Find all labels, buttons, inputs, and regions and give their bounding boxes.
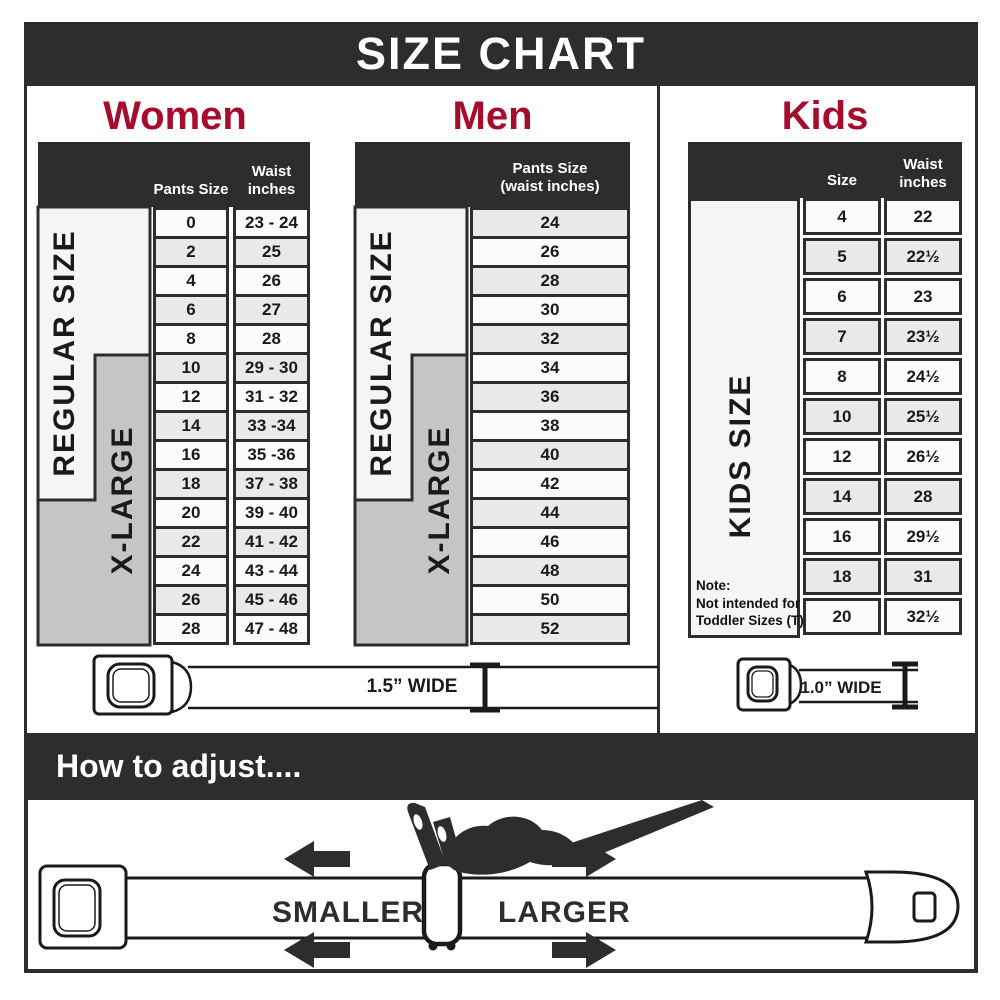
table-cell: 28	[884, 478, 962, 515]
table-cell: 34	[470, 352, 630, 384]
men-table-header: Pants Size (waist inches)	[355, 142, 630, 207]
section-divider	[657, 86, 660, 733]
men-pants-size-column: 242628303234363840424446485052	[470, 207, 630, 645]
page-title: SIZE CHART	[24, 22, 978, 86]
table-cell: 22	[884, 198, 962, 235]
table-cell: 31 - 32	[233, 381, 310, 413]
table-cell: 52	[470, 613, 630, 645]
kids-table-header: Size Waist inches	[688, 142, 962, 198]
kids-size-header: Size	[803, 172, 881, 191]
table-cell: 41 - 42	[233, 526, 310, 558]
table-cell: 35 -36	[233, 439, 310, 471]
table-cell: 14	[153, 410, 229, 442]
table-cell: 42	[470, 468, 630, 500]
table-cell: 25½	[884, 398, 962, 435]
table-cell: 20	[803, 598, 881, 635]
table-cell: 28	[153, 613, 229, 645]
frame-border-left	[24, 86, 27, 733]
table-cell: 8	[153, 323, 229, 355]
table-cell: 26	[233, 265, 310, 297]
table-cell: 29 - 30	[233, 352, 310, 384]
men-pants-size-header: Pants Size (waist inches)	[470, 160, 630, 198]
table-cell: 45 - 46	[233, 584, 310, 616]
men-size-group-labels: REGULAR SIZE X-LARGE	[353, 205, 469, 647]
adjust-belt-tip-hole	[914, 893, 935, 921]
table-cell: 16	[803, 518, 881, 555]
kids-waist-column: 2222½2323½24½25½26½2829½3132½	[884, 198, 962, 638]
table-cell: 44	[470, 497, 630, 529]
kids-belt-width-label: 1.0” WIDE	[796, 678, 886, 698]
table-cell: 36	[470, 381, 630, 413]
adult-belt-buckle-window	[108, 664, 154, 707]
table-cell: 50	[470, 584, 630, 616]
table-cell: 31	[884, 558, 962, 595]
table-cell: 4	[153, 265, 229, 297]
table-cell: 26	[153, 584, 229, 616]
adjust-belt-illustration	[28, 800, 974, 969]
size-chart: SIZE CHART Women Men Kids Pants Size Wai…	[0, 0, 1000, 1000]
kids-waist-header: Waist inches	[884, 156, 962, 194]
table-cell: 10	[153, 352, 229, 384]
table-cell: 38	[470, 410, 630, 442]
table-cell: 46	[470, 526, 630, 558]
kids-size-region: KIDS SIZE Note: Not intended for Toddler…	[688, 198, 800, 638]
table-cell: 4	[803, 198, 881, 235]
adjust-belt-tip	[866, 872, 958, 942]
adult-belt-width-label: 1.5” WIDE	[362, 676, 462, 698]
table-cell: 39 - 40	[233, 497, 310, 529]
table-cell: 30	[470, 294, 630, 326]
hand-illustration	[407, 800, 714, 875]
arrow-left-top	[284, 841, 350, 877]
adult-belt-width-marker	[470, 665, 500, 710]
table-cell: 6	[153, 294, 229, 326]
smaller-label: SMALLER	[272, 896, 412, 930]
table-cell: 20	[153, 497, 229, 529]
table-cell: 23½	[884, 318, 962, 355]
table-cell: 32½	[884, 598, 962, 635]
adult-belt-loop	[172, 662, 191, 712]
table-cell: 10	[803, 398, 881, 435]
women-size-group-labels: REGULAR SIZE X-LARGE	[36, 205, 152, 647]
table-cell: 16	[153, 439, 229, 471]
adjust-slider-foot-left	[429, 942, 438, 951]
table-cell: 18	[153, 468, 229, 500]
women-waist-column: 23 - 242526272829 - 3031 - 3233 -3435 -3…	[233, 207, 310, 645]
table-cell: 24	[470, 207, 630, 239]
kids-note: Note: Not intended for Toddler Sizes (T)	[696, 577, 806, 630]
kids-heading: Kids	[688, 94, 962, 138]
table-cell: 14	[803, 478, 881, 515]
women-pants-size-header: Pants Size	[153, 181, 229, 200]
kids-size-label: KIDS SIZE	[724, 374, 758, 539]
table-cell: 2	[153, 236, 229, 268]
table-cell: 23	[884, 278, 962, 315]
table-cell: 22½	[884, 238, 962, 275]
table-cell: 32	[470, 323, 630, 355]
table-cell: 22	[153, 526, 229, 558]
men-xlarge-label: X-LARGE	[423, 426, 456, 575]
table-cell: 23 - 24	[233, 207, 310, 239]
table-cell: 24½	[884, 358, 962, 395]
table-cell: 37 - 38	[233, 468, 310, 500]
women-regular-size-label: REGULAR SIZE	[48, 229, 81, 476]
table-cell: 8	[803, 358, 881, 395]
table-cell: 18	[803, 558, 881, 595]
table-cell: 5	[803, 238, 881, 275]
adjust-slider-foot-right	[447, 942, 456, 951]
table-cell: 47 - 48	[233, 613, 310, 645]
table-cell: 43 - 44	[233, 555, 310, 587]
kids-size-column: 45678101214161820	[803, 198, 881, 638]
table-cell: 7	[803, 318, 881, 355]
table-cell: 6	[803, 278, 881, 315]
table-cell: 28	[470, 265, 630, 297]
table-cell: 0	[153, 207, 229, 239]
table-cell: 40	[470, 439, 630, 471]
table-cell: 25	[233, 236, 310, 268]
table-cell: 12	[803, 438, 881, 475]
men-regular-size-label: REGULAR SIZE	[365, 229, 398, 476]
table-cell: 48	[470, 555, 630, 587]
table-cell: 26	[470, 236, 630, 268]
adjust-slider	[424, 864, 460, 944]
table-cell: 27	[233, 294, 310, 326]
how-to-adjust-heading: How to adjust....	[24, 733, 978, 800]
table-cell: 24	[153, 555, 229, 587]
table-cell: 12	[153, 381, 229, 413]
women-pants-size-column: 0246810121416182022242628	[153, 207, 229, 645]
frame-border-right	[975, 86, 978, 733]
women-heading: Women	[40, 94, 310, 138]
women-xlarge-label: X-LARGE	[106, 426, 139, 575]
men-heading: Men	[355, 94, 630, 138]
table-cell: 33 -34	[233, 410, 310, 442]
adjust-illustration-box: SMALLER LARGER	[24, 800, 978, 973]
table-cell: 29½	[884, 518, 962, 555]
women-waist-header: Waist inches	[233, 163, 310, 201]
larger-label: LARGER	[498, 896, 628, 930]
table-cell: 26½	[884, 438, 962, 475]
women-table-header: Pants Size Waist inches	[38, 142, 310, 207]
table-cell: 28	[233, 323, 310, 355]
